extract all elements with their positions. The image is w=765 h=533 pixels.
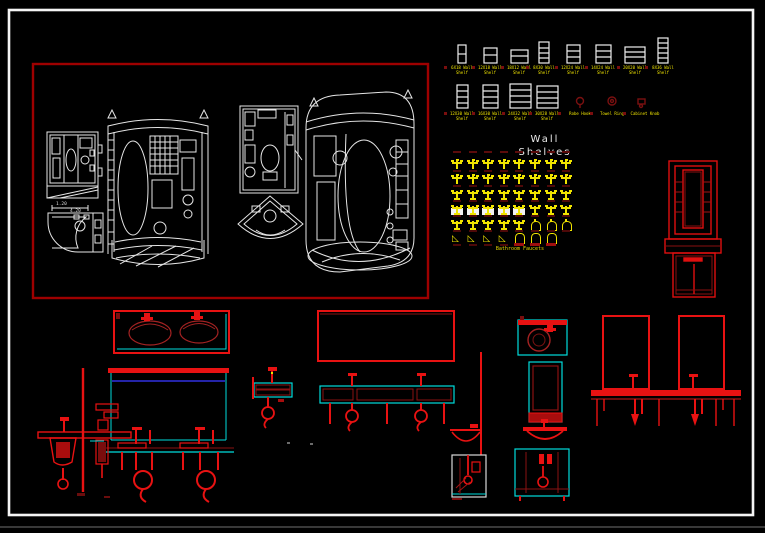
dimension-speck [310, 443, 313, 445]
shelf-label: 12X18 WallShelf [477, 66, 503, 75]
grid-dash [562, 151, 570, 153]
shower-unit-plan-small[interactable] [47, 132, 102, 198]
shower-unit-plan-large[interactable] [240, 106, 302, 193]
long-counter-front[interactable] [320, 373, 454, 431]
shelf-label: 14X24 WallShelf [590, 66, 616, 75]
sink-cabinet-side-view[interactable] [450, 352, 486, 500]
rounded-shower-cabin[interactable] [306, 90, 414, 272]
faucet-symbol[interactable] [513, 159, 526, 172]
faucet-symbol[interactable] [482, 204, 495, 217]
faucet-symbol[interactable] [560, 159, 573, 172]
faucet-symbol[interactable] [467, 174, 480, 187]
faucet-symbol[interactable] [529, 233, 542, 246]
shelf-label: 8X36 WallShelf [650, 66, 676, 75]
faucet-symbol[interactable] [467, 204, 480, 217]
counter-side-view[interactable] [253, 367, 292, 428]
faucet-symbol[interactable]: ◺ [467, 233, 480, 246]
grid-dash [453, 151, 461, 153]
faucet-symbol[interactable] [467, 189, 480, 202]
faucet-symbol[interactable]: ◺ [498, 233, 511, 246]
faucet-symbol[interactable] [545, 159, 558, 172]
faucet-symbol[interactable] [451, 189, 464, 202]
shelf-label: 16X30 WallShelf [477, 112, 503, 121]
shelf-label: 8X30 WallShelf [531, 66, 557, 75]
faucet-symbol[interactable] [545, 204, 558, 217]
faucet-symbol[interactable] [529, 189, 542, 202]
vanity-mirror-cabinet-right[interactable] [665, 161, 721, 297]
faucet-symbol[interactable] [529, 159, 542, 172]
grid-dash [484, 151, 492, 153]
double-mirror-vanity[interactable] [591, 316, 741, 426]
faucet-symbol[interactable] [545, 189, 558, 202]
faucet-symbol[interactable] [482, 189, 495, 202]
faucet-symbol[interactable] [498, 189, 511, 202]
shower-cabin-front[interactable] [108, 110, 208, 267]
cad-drawing [0, 0, 765, 533]
dimension-label-2: 4.20 [70, 209, 81, 214]
bathroom-faucets-caption: Bathroom Faucets [480, 246, 560, 252]
cad-canvas: Wall Shelves Bathroom Faucets 1.20 4.20 … [0, 0, 765, 533]
faucet-symbol[interactable] [560, 204, 573, 217]
faucet-symbol[interactable] [513, 233, 526, 246]
faucet-symbol[interactable] [482, 219, 495, 232]
dimension-label-1: 1.20 [56, 202, 67, 207]
faucet-symbol[interactable] [513, 204, 526, 217]
faucet-symbol[interactable] [451, 219, 464, 232]
dimension-speck [287, 442, 290, 444]
grid-dash [547, 151, 555, 153]
faucet-symbol[interactable] [451, 159, 464, 172]
faucet-symbol[interactable] [560, 189, 573, 202]
faucet-symbol[interactable]: ◺ [482, 233, 495, 246]
grid-dash [531, 151, 539, 153]
faucet-symbol[interactable] [545, 174, 558, 187]
faucet-symbol[interactable] [498, 204, 511, 217]
faucet-symbol[interactable] [467, 159, 480, 172]
faucet-symbol[interactable] [545, 233, 558, 246]
faucet-symbol[interactable] [451, 174, 464, 187]
faucet-symbol[interactable] [498, 159, 511, 172]
faucet-symbol[interactable] [451, 204, 464, 217]
wall-shelf-symbols-row1[interactable] [458, 38, 668, 63]
grid-dash [469, 151, 477, 153]
vanity-mirror-front-large[interactable] [77, 368, 234, 502]
wall-sink-side-view[interactable] [38, 368, 131, 492]
faucet-symbol[interactable] [529, 219, 542, 232]
faucet-symbol[interactable] [467, 219, 480, 232]
faucet-symbol[interactable] [513, 174, 526, 187]
vanity-stack-views[interactable] [515, 316, 569, 501]
shelf-label: 30X28 WallShelf [534, 112, 560, 121]
faucet-symbol[interactable] [560, 219, 573, 232]
bath-accessory-symbols[interactable] [577, 97, 646, 108]
faucet-symbol[interactable] [545, 219, 558, 232]
faucet-symbol[interactable] [482, 159, 495, 172]
faucet-symbol[interactable]: ◺ [451, 233, 464, 246]
faucet-symbol[interactable] [498, 219, 511, 232]
accessory-label: Cabinet Knob [628, 112, 662, 117]
faucet-symbol[interactable] [513, 219, 526, 232]
wide-mirror-front[interactable] [318, 311, 454, 361]
shelf-label: 12X24 WallShelf [560, 66, 586, 75]
grid-dash [500, 151, 508, 153]
wall-shelves-title: Wall Shelves [505, 133, 585, 159]
corner-shower-plan[interactable] [238, 196, 303, 239]
shower-collection-frame[interactable] [33, 64, 428, 298]
faucet-symbol[interactable] [529, 174, 542, 187]
faucet-symbol[interactable] [513, 189, 526, 202]
faucet-symbol[interactable] [560, 174, 573, 187]
double-sink-counter-plan[interactable] [114, 311, 229, 353]
grid-dash [515, 151, 523, 153]
faucet-symbol[interactable] [498, 174, 511, 187]
wall-shelf-symbols-row2[interactable] [457, 84, 558, 108]
faucet-symbol[interactable] [482, 174, 495, 187]
faucet-symbol[interactable] [529, 204, 542, 217]
